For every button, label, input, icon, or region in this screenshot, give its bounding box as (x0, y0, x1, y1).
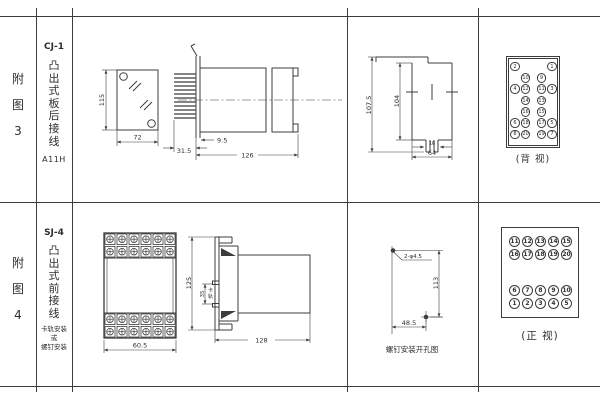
terminal-pins (174, 74, 196, 118)
figure3-panel-cutout-drawing: 107.5 104 16 64 (358, 42, 473, 164)
dim-width-60-5: 60.5 (133, 342, 147, 350)
screw-terminal-blocks (104, 233, 176, 338)
figure4-type-char: 凸 (49, 245, 60, 258)
figure4-model: SJ-4 (37, 228, 71, 238)
terminal-pin: 9 (548, 285, 560, 297)
terminal-pin: 18 (535, 249, 547, 261)
dimension-lines (188, 237, 310, 343)
figure3-type-char: 接 (49, 123, 60, 136)
dim-horizontal-48-5: 48.5 (402, 319, 416, 327)
figure3-model: CJ-1 (37, 42, 71, 52)
dim-offset-9-5: 9.5 (217, 137, 227, 145)
terminal-pin: 3 (535, 298, 547, 310)
terminal-grid-front-top: 11121314151617181920 (508, 235, 573, 261)
dim-slot-16: 16 (429, 141, 435, 147)
terminal-pin: 13 (537, 96, 547, 106)
table-col-divider-4 (478, 8, 479, 392)
leader-and-dimensions (392, 251, 443, 332)
terminal-pin: 12 (521, 84, 531, 94)
figure4-front-view-drawing: 60.5 (95, 226, 190, 361)
figure3-type-char: 线 (49, 136, 60, 149)
figure3-index-char: 附 (12, 66, 24, 92)
figure4-mount-note: 卡轨安装或螺钉安装 (35, 325, 73, 352)
cutout-outline (376, 57, 458, 152)
terminal-pin: 13 (535, 236, 547, 248)
mount-note-line: 或 (35, 334, 73, 343)
terminal-pin: 5 (547, 118, 557, 128)
terminal-pin: 10 (521, 73, 531, 83)
figure3-type-char: 式 (49, 85, 60, 98)
dim-width-64: 64 (428, 149, 436, 157)
hole-spec-label: 2-φ4.5 (404, 254, 422, 260)
figure3-index-char: 图 (12, 92, 24, 118)
terminal-pin: 10 (561, 285, 573, 297)
terminal-pin: 1 (509, 298, 521, 310)
terminal-pin: 12 (522, 236, 534, 248)
terminal-pin: 11 (509, 236, 521, 248)
relay-body-outline (213, 237, 311, 330)
terminal-pin: 15 (561, 236, 573, 248)
terminal-pin: 20 (561, 249, 573, 261)
terminal-pin: 17 (522, 249, 534, 261)
terminal-pin: 19 (537, 130, 547, 140)
terminal-pin: 14 (521, 96, 531, 106)
figure3-type-label: 凸出式板后接线 (37, 60, 71, 148)
table-border-bottom (0, 386, 600, 387)
figure4-drill-drawing: 2-φ4.5 113 48.5 螺钉安装开孔图 (360, 228, 472, 358)
terminal-pin: 14 (548, 236, 560, 248)
terminal-pin: 2 (510, 62, 520, 72)
terminal-pin: 20 (521, 130, 531, 140)
terminal-pin: 16 (509, 249, 521, 261)
terminal-pin: 8 (510, 130, 520, 140)
figure4-type-label: 凸出式前接线 (37, 245, 71, 321)
terminal-pin: 4 (510, 84, 520, 94)
dim-width-72: 72 (133, 134, 141, 142)
manual-page: 附图3 CJ-1 凸出式板后接线 A11H 115 72 (0, 0, 600, 400)
front-view-caption: (正 视) (496, 328, 584, 343)
terminal-pin: 19 (548, 249, 560, 261)
table-border-top (0, 16, 600, 17)
dim-vertical-113: 113 (432, 277, 440, 289)
terminal-pin: 16 (521, 107, 531, 117)
terminal-grid-front-bottom: 67891012345 (508, 284, 573, 310)
figure3-index: 附图3 (4, 66, 32, 144)
terminal-pin: 6 (510, 118, 520, 128)
case-outline (117, 70, 158, 130)
terminal-pin: 3 (547, 84, 557, 94)
figure3-side-view-drawing: 31.5 9.5 126 (172, 42, 347, 164)
dim-rail-35: 35 (200, 290, 206, 297)
terminal-pin: 11 (537, 84, 547, 94)
terminal-pin: 18 (521, 118, 531, 128)
terminal-pin: 4 (548, 298, 560, 310)
terminal-pin: 7 (522, 285, 534, 297)
terminal-pin: 1 (547, 62, 557, 72)
figure3-code: A11H (37, 155, 71, 164)
figure3-index-char: 3 (14, 118, 22, 144)
dimension-lines (102, 70, 158, 146)
terminal-pin: 2 (522, 298, 534, 310)
figure4-side-view-drawing: 125 35 卡 轨 128 (182, 222, 332, 362)
terminal-pin: 15 (537, 107, 547, 117)
figure4-index: 附图4 (4, 250, 32, 328)
dim-depth-128: 128 (255, 337, 267, 345)
drill-caption: 螺钉安装开孔图 (386, 344, 439, 354)
table-col-divider-3 (347, 8, 348, 392)
dim-overall-107-5: 107.5 (365, 96, 373, 115)
dim-height-115: 115 (98, 94, 106, 106)
dim-inner-104: 104 (393, 95, 401, 107)
terminal-pin: 8 (535, 285, 547, 297)
back-view-caption: (背 视) (496, 151, 570, 165)
figure4-index-char: 附 (12, 250, 24, 276)
terminal-layout-front-view: 11121314151617181920 67891012345 (501, 227, 579, 318)
terminal-pin: 17 (537, 118, 547, 128)
rail-label-char1: 卡 (208, 287, 213, 294)
dim-pin-31-5: 31.5 (177, 147, 191, 155)
table-row-divider (0, 202, 600, 203)
rail-label-char2: 轨 (208, 293, 213, 300)
mount-note-line: 螺钉安装 (35, 343, 73, 352)
figure4-type-char: 式 (49, 270, 60, 283)
figure4-type-char: 线 (49, 308, 60, 321)
terminal-grid-back: 2110941211314131615618175820197 (510, 61, 556, 143)
dim-length-126: 126 (241, 152, 253, 160)
figure3-type-char: 凸 (49, 60, 60, 73)
dimension-lines (368, 57, 452, 160)
terminal-layout-back-view: 2110941211314131615618175820197 (506, 56, 560, 148)
dim-height-125: 125 (185, 277, 193, 289)
terminal-pin: 5 (561, 298, 573, 310)
mount-note-line: 卡轨安装 (35, 325, 73, 334)
relay-body-outline (191, 44, 298, 138)
terminal-pin: 7 (547, 130, 557, 140)
figure4-index-char: 4 (14, 302, 22, 328)
terminal-pin: 6 (509, 285, 521, 297)
terminal-pin: 9 (537, 73, 547, 83)
figure4-index-char: 图 (12, 276, 24, 302)
